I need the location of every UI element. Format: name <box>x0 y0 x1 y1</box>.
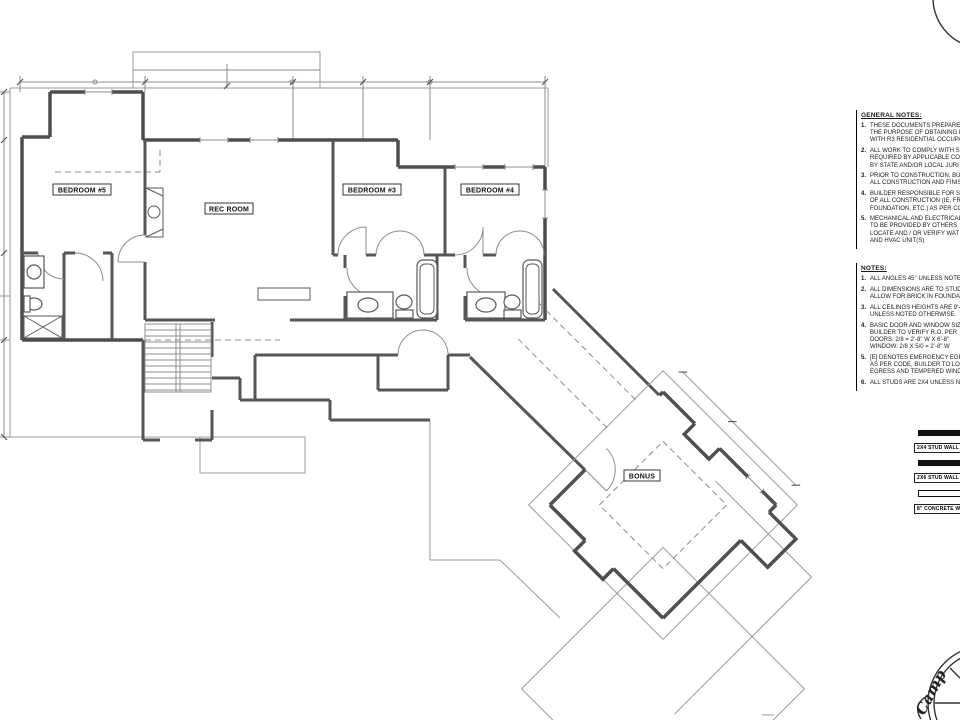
note-2: 2. ALL DIMENSIONS ARE TO STUD ALLOW FOR … <box>861 287 960 301</box>
door-swings <box>38 227 544 355</box>
room-label-bedroom3: BEDROOM #3 <box>343 184 401 195</box>
dashed-attic-lines <box>55 150 280 340</box>
note-5: 5. [E] DENOTES EMERGENCY EGRE AS PER COD… <box>861 355 960 377</box>
bonus-walls <box>539 392 803 656</box>
bonus-window <box>746 475 764 493</box>
2x6-stud-wall-symbol <box>918 460 960 466</box>
concrete-wall-symbol <box>918 490 960 497</box>
2x4-stud-wall-symbol <box>918 430 960 436</box>
note-6: 6. ALL STUDS ARE 2X4 UNLESS N <box>861 380 960 387</box>
stairs <box>145 324 211 392</box>
general-notes-panel: GENERAL NOTES: 1. THESE DOCUMENTS PREPAR… <box>856 110 960 249</box>
general-notes-title: GENERAL NOTES: <box>861 112 960 119</box>
room-label-bedroom4: BEDROOM #4 <box>461 184 519 195</box>
bath3-fixtures <box>347 260 437 318</box>
windows <box>85 89 548 218</box>
roof-overhang-outline <box>0 52 560 618</box>
svg-text:BEDROOM #3: BEDROOM #3 <box>348 188 396 195</box>
note-1: 1. ALL ANGLES 45° UNLESS NOTED <box>861 276 960 283</box>
room-label-bonus: BONUS <box>624 470 660 481</box>
floor-plan-sheet: BEDROOM #5 REC ROOM BEDROOM #3 BEDROOM #… <box>0 0 960 720</box>
general-note-4: 4. BUILDER RESPONSIBLE FOR SIZ OF ALL CO… <box>861 191 960 213</box>
general-note-5: 5. MECHANICAL AND ELECTRICAL TO BE PROVI… <box>861 216 960 245</box>
dimension-lines <box>0 64 545 437</box>
wall-legend: 2X4 STUD WALL 2X6 STUD WALL 8" CONCRETE … <box>914 430 960 521</box>
floor-plan-drawing: BEDROOM #5 REC ROOM BEDROOM #3 BEDROOM #… <box>0 0 960 720</box>
svg-text:BONUS: BONUS <box>629 474 655 481</box>
notes-title: NOTES: <box>861 265 960 272</box>
bonus-roof-outline <box>433 361 902 720</box>
bonus-dashed-lines <box>469 303 734 568</box>
designer-stamp: Camp <box>912 646 960 720</box>
top-right-stamp-arc <box>933 0 960 48</box>
notes-panel: NOTES: 1. ALL ANGLES 45° UNLESS NOTED 2.… <box>856 263 960 391</box>
room-label-bedroom5: BEDROOM #5 <box>53 184 111 195</box>
note-3: 3. ALL CEILINGS HEIGHTS ARE 9'- UNLESS N… <box>861 305 960 319</box>
svg-text:BEDROOM #5: BEDROOM #5 <box>58 188 106 195</box>
bath5-fixtures <box>24 256 62 338</box>
bonus-door-swing <box>585 448 627 490</box>
svg-text:BEDROOM #4: BEDROOM #4 <box>466 188 514 195</box>
general-note-2: 2. ALL WORK TO COMPLY WITH SPE REQUIRED … <box>861 148 960 170</box>
note-4: 4. BASIC DOOR AND WINDOW SIZES BUILDER T… <box>861 323 960 352</box>
legend-2x6-stud-wall: 2X6 STUD WALL <box>914 460 960 484</box>
bonus-wing <box>338 264 904 720</box>
stamp-script-text: Camp <box>912 667 951 718</box>
general-note-1: 1. THESE DOCUMENTS PREPARED F THE PURPOS… <box>861 123 960 145</box>
general-note-3: 3. PRIOR TO CONSTRUCTION, BUILD ALL CONS… <box>861 173 960 187</box>
interior-walls <box>22 140 659 470</box>
room-label-rec-room: REC ROOM <box>205 203 253 214</box>
bath4-fixtures <box>467 260 542 318</box>
svg-text:REC ROOM: REC ROOM <box>209 207 249 214</box>
legend-concrete-wall: 8" CONCRETE WAL <box>914 490 960 515</box>
legend-2x4-stud-wall: 2X4 STUD WALL <box>914 430 960 454</box>
